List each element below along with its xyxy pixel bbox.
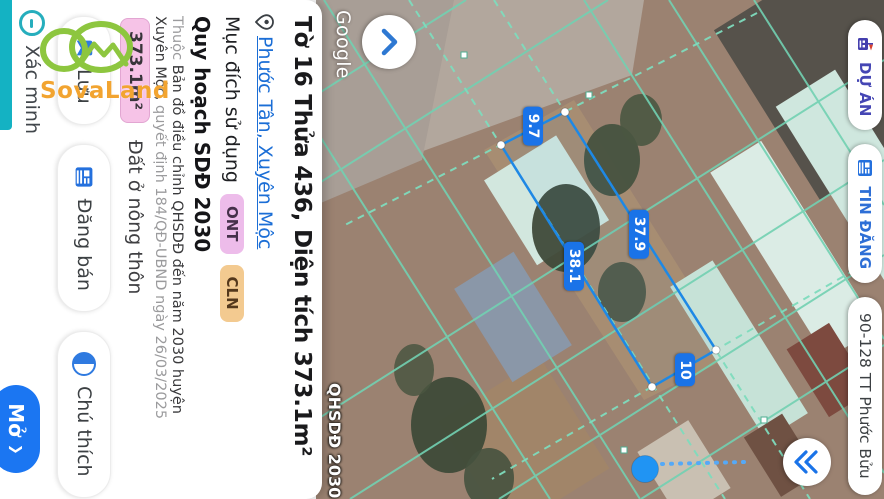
address-link[interactable]: Phước Tân, Xuyên Mộc [254,36,276,249]
double-chevron-down-icon [783,438,831,486]
chevron-up-icon [362,15,416,69]
map-pin-icon [256,13,275,31]
plan-description-line2: Xuyên Mộc, quyết định 184/QĐ-UBND ngày 2… [152,16,169,419]
current-point-dot [632,456,659,483]
verify-icon [19,10,45,36]
project-building-icon [855,34,875,54]
screenshot-root: DỰ ÁN TIN ĐĂNG 90-128 TT Phước Bửu [0,0,884,499]
parcel-info-sheet: Tờ 16 Thửa 436, Diện tích 373.1m² Phước … [0,0,322,499]
google-watermark: Google [332,10,354,79]
satellite-map-art [316,0,884,499]
plan-description-line1: Thuộc Bản đồ điều chỉnh QHSDĐ đến năm 20… [169,16,186,419]
chip-address-label: 90-128 TT Phước Bửu [856,313,874,479]
chip-du-an-label: DỰ ÁN [856,62,874,116]
collapse-button[interactable] [783,438,831,486]
plan-description: Thuộc Bản đồ điều chỉnh QHSDĐ đến năm 20… [152,16,185,419]
chevron-right-icon: ❯ [9,444,24,455]
chip-address[interactable]: 90-128 TT Phước Bửu [848,297,882,495]
bookmark-icon [73,37,95,59]
measure-label-38-1: 38.1 [564,242,584,291]
open-button-label: Mở [4,403,28,437]
newspaper-icon [72,165,96,189]
chip-tin-dang[interactable]: TIN ĐĂNG [848,144,882,283]
chip-tin-dang-label: TIN ĐĂNG [856,186,874,269]
post-sale-button-label: Đăng bán [73,199,95,291]
usage-badge-ont[interactable]: ONT [220,194,244,254]
usage-badge-cln[interactable]: CLN [220,265,244,322]
verify-tab-label: Xác minh [21,45,43,134]
post-sale-button[interactable]: Đăng bán [57,144,111,312]
map-chip-row: DỰ ÁN TIN ĐĂNG 90-128 TT Phước Bửu [848,20,882,495]
newspaper-icon [855,158,875,178]
save-button-label: Lưu [73,69,95,104]
save-button[interactable]: Lưu [57,16,111,125]
rotated-app-screen: DỰ ÁN TIN ĐĂNG 90-128 TT Phước Bửu [0,0,884,499]
legend-toggle-button[interactable]: Chú thích [57,331,111,498]
usage-row: Mục đích sử dụng ONT CLN [220,16,244,322]
action-button-row: Lưu Đăng bán Chú thích [57,16,111,498]
open-button[interactable]: Mở ❯ [0,385,40,473]
expand-sheet-button[interactable] [362,15,416,69]
legend-toggle-label: Chú thích [73,386,95,477]
parcel-title: Tờ 16 Thửa 436, Diện tích 373.1m² [289,16,315,456]
usage-label: Mục đích sử dụng [221,16,243,183]
plan-title: Quy hoạch SDĐ 2030 [190,16,214,252]
verify-tab-active-indicator [0,0,12,130]
measure-label-10: 10 [675,353,695,386]
chip-du-an[interactable]: DỰ ÁN [848,20,882,130]
half-circle-legend-icon [72,352,96,376]
satellite-map[interactable]: DỰ ÁN TIN ĐĂNG 90-128 TT Phước Bửu [316,0,884,499]
verify-tab[interactable]: Xác minh [19,10,45,134]
zoning-label: Đất ở nông thôn [124,140,146,295]
plan-layer-watermark: QHSDĐ 2030 [325,383,344,498]
measure-label-37-9: 37.9 [629,210,649,259]
zoning-legend-row: 373.1m² Đất ở nông thôn [120,18,150,294]
measure-label-9-7: 9.7 [523,107,543,146]
zoning-area-badge: 373.1m² [120,18,150,123]
address-row: Phước Tân, Xuyên Mộc [254,13,276,249]
